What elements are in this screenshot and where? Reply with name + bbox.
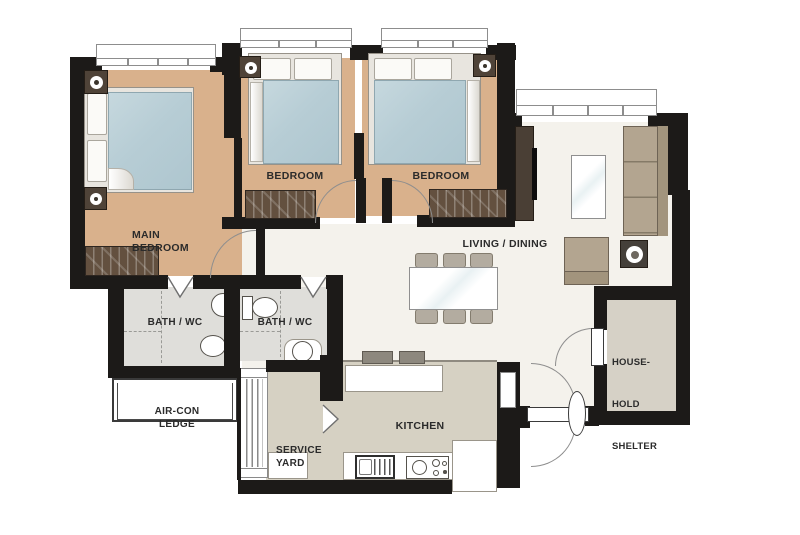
stove-knob (443, 470, 447, 474)
window-frame-line (97, 58, 215, 59)
entrance-door-arc (531, 422, 576, 467)
bedroom3-window (381, 28, 488, 48)
dining-chair (443, 253, 466, 268)
window-mullion (622, 106, 624, 115)
wall (354, 133, 364, 179)
wall (672, 190, 690, 288)
dining-chair (470, 253, 493, 268)
floor-plan: MAINBEDROOM BEDROOM BEDROOM LIVING / DIN… (0, 0, 800, 535)
main-bedroom-window (96, 44, 216, 66)
pillow-icon (374, 58, 412, 80)
bath2-label: BATH / WC (258, 316, 313, 329)
wall (224, 287, 240, 372)
wall (497, 406, 530, 428)
ladder-rails (246, 379, 263, 467)
main-bedroom-label: MAINBEDROOM (132, 203, 189, 281)
wall (70, 57, 85, 289)
toilet-bowl-icon (252, 297, 278, 318)
bath1-shower-screen-2 (124, 331, 161, 332)
sofa-backrest (657, 126, 668, 236)
wall (237, 368, 241, 480)
toilet-bowl-icon (200, 335, 226, 357)
bedroom2-wardrobe (245, 190, 316, 219)
stove-burner (432, 459, 440, 467)
fan-side-table-icon (620, 240, 648, 268)
cooker-hood-icon (399, 351, 425, 364)
window-mullion (315, 40, 317, 47)
wall (594, 286, 607, 330)
ladder-bottom-cap (240, 468, 268, 469)
wash-basin-icon (292, 341, 313, 362)
household-shelter-label: HOUSE- HOLD SHELTER (612, 328, 657, 482)
wall (320, 355, 343, 401)
coffee-table (571, 155, 606, 219)
living-dining-label: LIVING / DINING (462, 238, 547, 251)
window-mullion (278, 40, 280, 47)
window-mullion (187, 58, 189, 65)
aircon-unit-icon (84, 187, 107, 210)
fridge-icon (500, 372, 516, 408)
cooker-hood-icon (362, 351, 393, 364)
kitchen-label: KITCHEN (396, 420, 445, 433)
stove-burner (433, 470, 439, 476)
bath1-label: BATH / WC (148, 316, 203, 329)
pillow-icon (414, 58, 452, 80)
wall (234, 138, 242, 225)
aircon-unit-icon (473, 54, 496, 77)
bedroom3-bed-mattress (374, 80, 466, 164)
pillow-icon (294, 58, 332, 80)
bed-sheet-fold (467, 80, 480, 162)
dining-table (409, 267, 498, 310)
stove-burner-large (412, 460, 427, 475)
window-mullion (417, 40, 419, 47)
ladder-top-cap (240, 377, 268, 378)
pillow-icon (87, 140, 107, 182)
bedroom3-wardrobe (429, 189, 507, 218)
bedroom2-label: BEDROOM (267, 170, 324, 183)
window-mullion (587, 106, 589, 115)
bedroom3-door (382, 178, 392, 223)
window-frame-line (382, 40, 487, 41)
bath2-shower-screen-2 (240, 331, 280, 332)
dining-chair (443, 309, 466, 324)
bed-sheet-fold (250, 82, 263, 162)
kitchen-sink-basin (359, 459, 372, 475)
window-mullion (127, 58, 129, 65)
wall (108, 366, 240, 378)
bedroom2-door (356, 178, 366, 223)
dining-chair (415, 253, 438, 268)
dining-chair (470, 309, 493, 324)
service-yard-label: SERVICEYARD (276, 418, 322, 496)
kitchen-counter-right (452, 440, 497, 492)
bedroom3-label: BEDROOM (413, 170, 470, 183)
window-mullion (157, 58, 159, 65)
armchair-base (564, 271, 609, 285)
wall (676, 286, 690, 425)
living-room-window (516, 89, 657, 116)
kitchen-sink-drainer (374, 459, 391, 475)
household-shelter-door (591, 328, 604, 366)
aircon-unit-icon (84, 70, 108, 94)
main-bedroom-door (256, 226, 265, 278)
bedroom2-window (240, 28, 352, 48)
kitchen-counter-top (345, 365, 443, 392)
dining-chair (415, 309, 438, 324)
aircon-unit-icon (239, 56, 261, 78)
tv-icon (532, 148, 537, 200)
pillow-icon (87, 93, 107, 135)
stove-burner (442, 461, 447, 466)
entrance-door-leaf (568, 391, 586, 436)
window-mullion (552, 106, 554, 115)
window-mullion (452, 40, 454, 47)
aircon-ledge-label: AIR-CONLEDGE (155, 381, 200, 456)
wall (238, 480, 452, 494)
wall (108, 275, 124, 378)
window-frame-line (241, 40, 351, 41)
bedroom2-bed-mattress (263, 80, 339, 164)
